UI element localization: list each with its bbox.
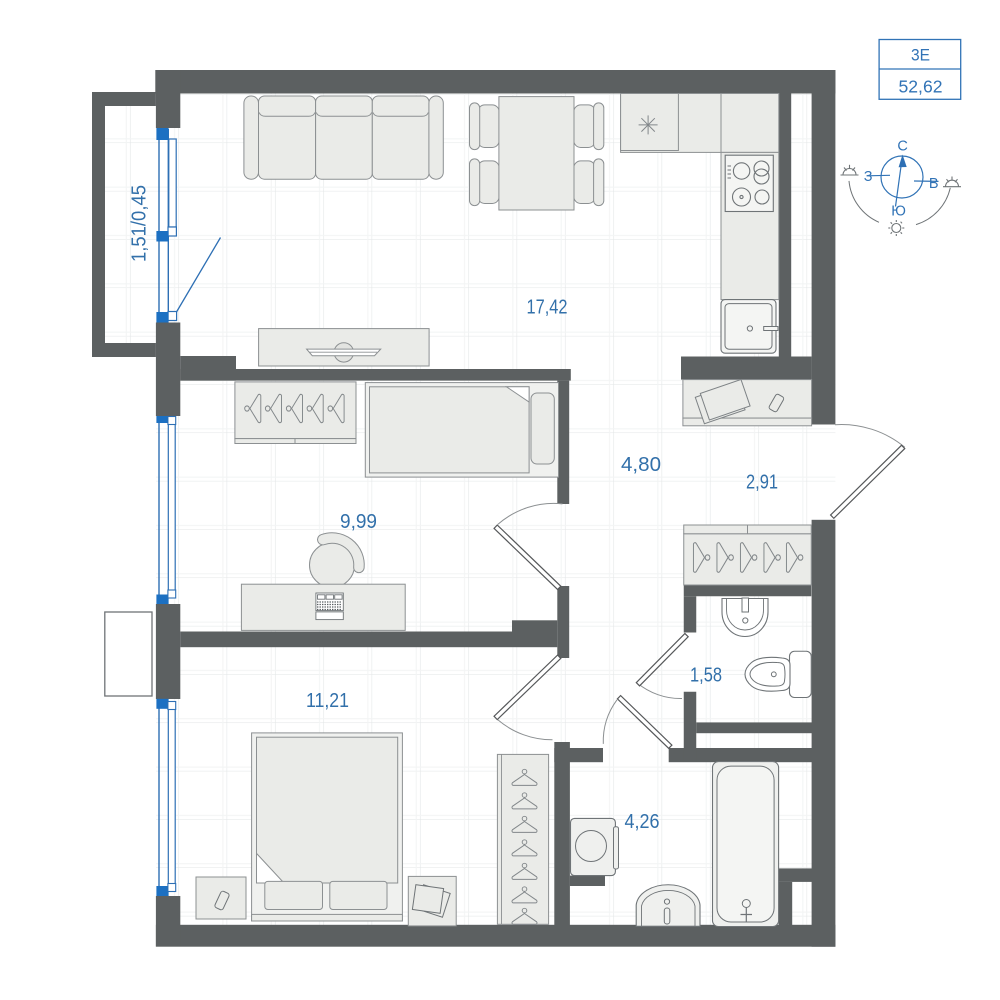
svg-text:4,26: 4,26 — [625, 810, 660, 833]
svg-text:З: З — [864, 169, 873, 185]
svg-text:3Е: 3Е — [911, 46, 930, 65]
svg-text:1,51/0,45: 1,51/0,45 — [127, 185, 150, 262]
svg-text:17,42: 17,42 — [527, 295, 568, 318]
svg-text:11,21: 11,21 — [306, 689, 349, 712]
svg-text:9,99: 9,99 — [340, 510, 377, 533]
svg-text:Ю: Ю — [891, 204, 906, 220]
svg-text:1,58: 1,58 — [690, 663, 722, 686]
svg-text:52,62: 52,62 — [899, 77, 943, 97]
svg-text:В: В — [929, 176, 939, 192]
svg-text:2,91: 2,91 — [746, 470, 778, 493]
svg-text:С: С — [897, 139, 907, 155]
svg-text:4,80: 4,80 — [621, 453, 661, 476]
